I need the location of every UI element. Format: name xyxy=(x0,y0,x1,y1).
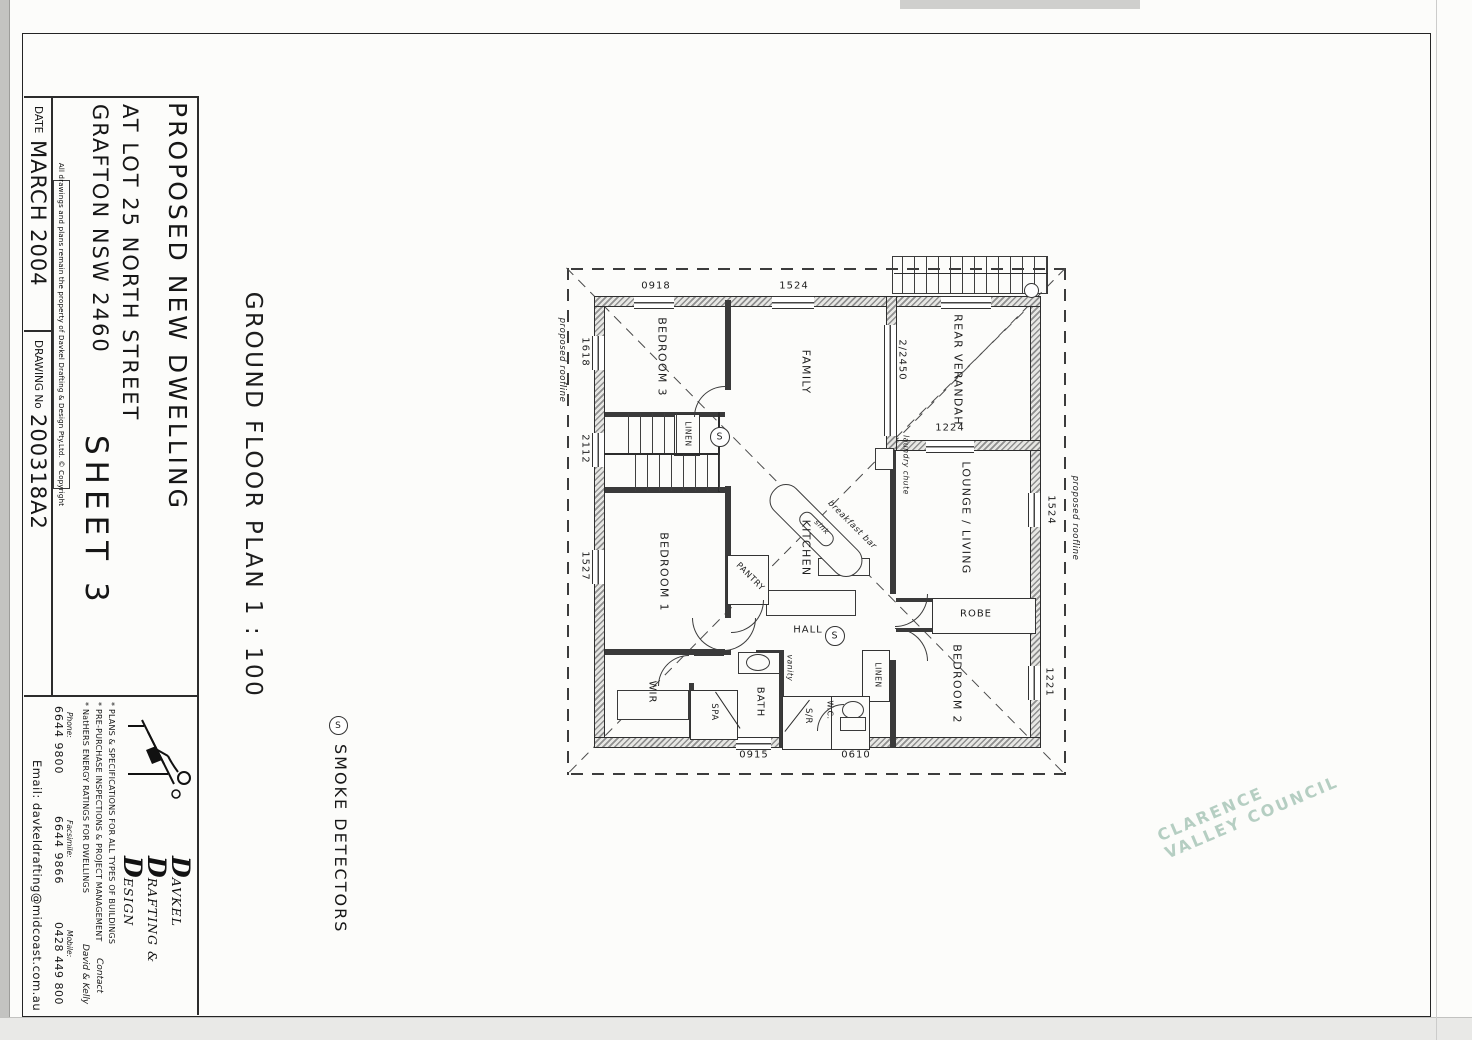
email-address: Email: davkeldrafting@midcoast.com.au xyxy=(30,760,44,1011)
interior-wall xyxy=(694,650,724,656)
interior-wall xyxy=(890,451,896,594)
phone-number: 6644 9800 xyxy=(52,706,65,775)
room-label-bath: BATH xyxy=(755,687,766,718)
legend-smoke-letter: S xyxy=(336,721,342,731)
steps-rail-line xyxy=(894,273,1048,274)
room-label-hall: HALL xyxy=(793,625,823,636)
scan-edge-left xyxy=(0,0,10,1040)
address-line2: GRAFTON NSW 2460 xyxy=(88,104,112,354)
address-line1: AT LOT 25 NORTH STREET xyxy=(118,104,142,421)
proposed-roofline-label: proposed roofline xyxy=(1070,476,1080,561)
room-label-kitchen: KITCHEN xyxy=(800,520,813,577)
mobile-number: 0428 449 800 xyxy=(52,922,65,1005)
room-label-robe: ROBE xyxy=(960,609,992,620)
room-label-linen2: LINEN xyxy=(874,662,883,687)
fax-number: 6644 9866 xyxy=(52,816,65,885)
scan-fold-line xyxy=(1436,0,1437,1040)
dim-1618: 1618 xyxy=(580,337,591,366)
copyright-text: All drawings and plans remain the proper… xyxy=(58,163,66,506)
scan-edge-top-smudge xyxy=(900,0,1140,9)
draftsman-cartoon xyxy=(122,712,194,807)
vanity-label: vanity xyxy=(786,655,795,682)
drawing-no-label: DRAWING No xyxy=(32,340,44,409)
room-label-wir: WIR xyxy=(647,681,658,704)
verandah-entry-opening xyxy=(941,296,991,309)
window xyxy=(634,296,674,309)
project-title: PROPOSED NEW DWELLING xyxy=(163,102,192,511)
room-label-bedroom1: BEDROOM 1 xyxy=(658,532,671,612)
date-label: DATE xyxy=(32,106,44,133)
sheet-number: SHEET 3 xyxy=(78,435,114,608)
scanned-floor-plan-sheet: S S REAR VERANDAH LOUNGE / LIVING BEDROO… xyxy=(0,0,1472,1040)
window xyxy=(592,336,605,370)
titleblock-top-line xyxy=(197,96,199,1015)
roofline-dashed-top xyxy=(1064,268,1066,775)
stair-treads xyxy=(625,454,720,491)
roofline-dashed-bottom xyxy=(567,268,569,775)
room-label-linen1: LINEN xyxy=(684,421,693,446)
plan-caption: GROUND FLOOR PLAN 1 : 100 xyxy=(240,292,266,699)
vanity-basin xyxy=(746,654,770,671)
bullet-energy: * NatHERS ENERGY RATINGS FOR DWELLINGS xyxy=(79,702,92,944)
bullet-plans: * PLANS & SPECIFICATIONS FOR ALL TYPES O… xyxy=(105,702,118,944)
window xyxy=(736,737,771,750)
laundry-chute-label: laundry chute xyxy=(902,435,911,495)
room-label-bedroom2: BEDROOM 2 xyxy=(951,644,964,724)
services-bullets: * PLANS & SPECIFICATIONS FOR ALL TYPES O… xyxy=(79,702,118,944)
stair-treads xyxy=(625,413,677,454)
interior-wall xyxy=(890,660,896,748)
logo-rest: AVKEL xyxy=(169,878,184,927)
fax-label: Facsimile: xyxy=(65,820,74,858)
room-label-family: FAMILY xyxy=(800,350,813,395)
window xyxy=(592,550,605,584)
legend-smoke-label: SMOKE DETECTORS xyxy=(331,744,350,933)
bullet-inspections: * PRE-PURCHASE INSPECTIONS & PROJECT MAN… xyxy=(92,702,105,944)
sliding-door xyxy=(884,325,897,436)
drawing-no-value: 200318A2 xyxy=(26,414,50,530)
window xyxy=(772,296,814,309)
room-label-rear-verandah: REAR VERANDAH xyxy=(952,314,965,426)
date-drawing-divider xyxy=(24,330,53,332)
dim-1527: 1527 xyxy=(580,551,591,580)
drawing-sheet: S S REAR VERANDAH LOUNGE / LIVING BEDROO… xyxy=(0,0,1472,1040)
copyright-strip: All drawings and plans remain the proper… xyxy=(53,180,70,489)
mobile-label: Mobile: xyxy=(65,930,74,957)
contact-label: Contact xyxy=(94,958,104,993)
dim-2112: 2112 xyxy=(580,434,591,463)
interior-wall xyxy=(725,300,731,390)
roofline-dashed-right xyxy=(567,773,1066,775)
room-label-bedroom3: BEDROOM 3 xyxy=(656,317,669,397)
kitchen-bench xyxy=(766,590,856,616)
dim-0915: 0915 xyxy=(739,750,768,761)
logo-rest: ESIGN xyxy=(121,878,136,927)
company-logo-text: DAVKEL DRAFTING & DESIGN xyxy=(118,856,190,963)
stair-rail-line xyxy=(604,453,720,455)
dim-1221: 1221 xyxy=(1044,667,1055,696)
verandah-opening xyxy=(926,440,974,453)
phone-label: Phone: xyxy=(65,712,74,738)
room-label-shower: S/R xyxy=(803,708,813,724)
room-label-lounge-living: LOUNGE / LIVING xyxy=(960,461,973,574)
logo-line-design: DESIGN xyxy=(118,856,142,963)
window xyxy=(1028,666,1041,700)
dim-0610: 0610 xyxy=(841,750,870,761)
room-label-spa: SPA xyxy=(709,703,719,721)
logo-box-left-line xyxy=(24,695,199,697)
dim-1224: 1224 xyxy=(935,423,964,434)
contact-names: David & Kelly xyxy=(80,944,90,1004)
smoke-detector-letter: S xyxy=(717,432,723,443)
dim-1524-left: 1524 xyxy=(779,281,808,292)
scan-edge-bottom xyxy=(0,1017,1472,1040)
window xyxy=(592,433,605,467)
legend-smoke-symbol: S xyxy=(329,716,348,735)
dim-1524-top: 1524 xyxy=(1046,495,1057,524)
verandah-post xyxy=(1024,283,1039,298)
dim-0918: 0918 xyxy=(641,281,670,292)
proposed-roofline-label: proposed roofline xyxy=(557,318,567,403)
titleblock-left-line xyxy=(24,96,199,98)
date-value: MARCH 2004 xyxy=(26,140,50,287)
window xyxy=(1028,493,1041,527)
dim-2-2450: 2/2450 xyxy=(897,339,908,380)
logo-initial: D xyxy=(118,856,147,878)
logo-rest: RAFTING & xyxy=(145,878,160,963)
smoke-detector-letter: S xyxy=(832,631,838,642)
smoke-detector-symbol: S xyxy=(710,427,730,447)
laundry-chute-box xyxy=(875,448,894,470)
room-label-wc: W.C. xyxy=(826,701,835,720)
smoke-detector-symbol: S xyxy=(825,626,845,646)
